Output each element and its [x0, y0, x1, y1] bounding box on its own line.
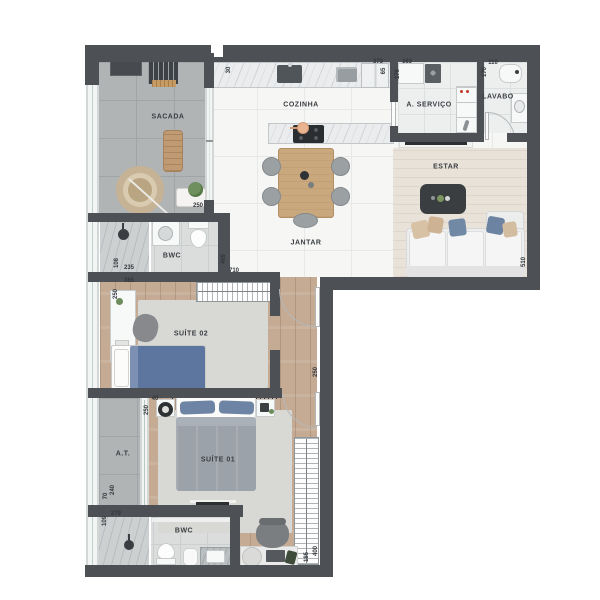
wall-bwc01-right [230, 517, 240, 565]
wall-sacada-divider-top [204, 53, 214, 88]
nightstand-plant [269, 409, 274, 414]
bwc01-sink [206, 550, 225, 563]
at-glass-line [144, 400, 145, 506]
sofa-cushion [447, 231, 484, 271]
wood-deck-strip [152, 80, 176, 87]
suite01-duvet [176, 417, 256, 491]
dining-chair [293, 213, 318, 228]
sliding-door-handle [206, 140, 213, 142]
coffee-table-dish [445, 196, 450, 201]
wall-bwc01-top [88, 505, 243, 517]
bwc01-shower-arm [128, 534, 130, 541]
sacada-sliding-door [205, 86, 214, 200]
wall-aservico-bottom [390, 133, 483, 142]
table-vase [300, 171, 309, 180]
wall-left-top [85, 45, 99, 85]
dining-chair [262, 157, 281, 176]
bwc02-toilet-tank [188, 221, 209, 229]
sofa-cushion [485, 231, 522, 271]
wall-lavabo-bottom [507, 133, 540, 142]
cabinet-item-red [460, 90, 463, 93]
left-glass-wall [86, 83, 99, 565]
kitchen-faucet [288, 63, 292, 67]
sacada-bench [163, 130, 183, 172]
suite01-pillow [219, 400, 254, 414]
pan [297, 122, 309, 134]
suite01-lamp [158, 402, 173, 417]
fridge [361, 63, 389, 88]
bwc02-shower-head [118, 229, 129, 240]
sofa-pillow [502, 221, 518, 238]
coffee-table-plant [437, 195, 444, 202]
wall-estar-bottom [320, 277, 540, 290]
suite02-wardrobe-rail [198, 291, 272, 292]
kitchen-island [268, 123, 394, 144]
suite01-chair-back [259, 518, 286, 525]
dining-chair [331, 187, 350, 206]
suite02-pillow [114, 349, 129, 387]
wall-right [527, 45, 540, 290]
bwc01-shower-glass [149, 517, 151, 565]
pouf [242, 547, 262, 567]
suite02-wardrobe [196, 282, 274, 302]
wall-east-wing [320, 277, 333, 577]
coffee-table-deco [431, 196, 435, 200]
pan-handle [290, 127, 298, 129]
dining-chair [331, 157, 350, 176]
sofa-pillow [448, 218, 467, 237]
wall-top [85, 45, 540, 62]
at-floor [99, 398, 143, 505]
wall-corridor-left-upper [270, 282, 280, 316]
lavabo-sink [514, 100, 525, 113]
bwc02-shower-arm [122, 223, 124, 230]
sofa-back [406, 266, 525, 277]
plant [188, 182, 203, 197]
wall-bwc02-bottom [88, 272, 280, 282]
bwc01-shower-head [124, 540, 134, 550]
nightstand-books [260, 403, 269, 412]
dining-chair [262, 187, 281, 206]
suite01-wardrobe-rail [306, 439, 307, 563]
suite02-desk-plant [116, 298, 123, 305]
bwc01-shelf [152, 518, 230, 522]
lavabo-toilet [499, 64, 522, 83]
washer [425, 64, 441, 83]
wall-sacada-bwc [88, 213, 218, 222]
laundry-tank [398, 63, 424, 84]
bwc02-sink [158, 226, 173, 241]
laptop [266, 550, 285, 562]
wall-suites-divider [88, 388, 282, 398]
sofa-pillow [427, 216, 444, 234]
bwc01-toilet-tank [156, 558, 176, 565]
bwc01-basket [183, 548, 198, 566]
wall-aservico-left-upper [390, 62, 398, 102]
kitchen-sink [277, 65, 302, 83]
bwc02-shower-glass [149, 220, 151, 274]
wall-lavabo-left [477, 62, 484, 142]
wall-corridor-left-lower [270, 350, 280, 388]
dining-table [278, 148, 334, 218]
cabinet-item-red [466, 90, 469, 93]
table-dish [308, 182, 314, 188]
floor-plan: SACADACOZINHAA. SERVIÇOLAVABOESTARJANTAR… [0, 0, 600, 600]
lavabo-toilet-button [515, 70, 519, 74]
suite02-blanket [130, 346, 205, 390]
bwc02-shower-floor [100, 220, 150, 274]
counter-appliance [336, 67, 357, 82]
wall-bottom [85, 565, 333, 577]
suite01-pillow [180, 400, 215, 414]
